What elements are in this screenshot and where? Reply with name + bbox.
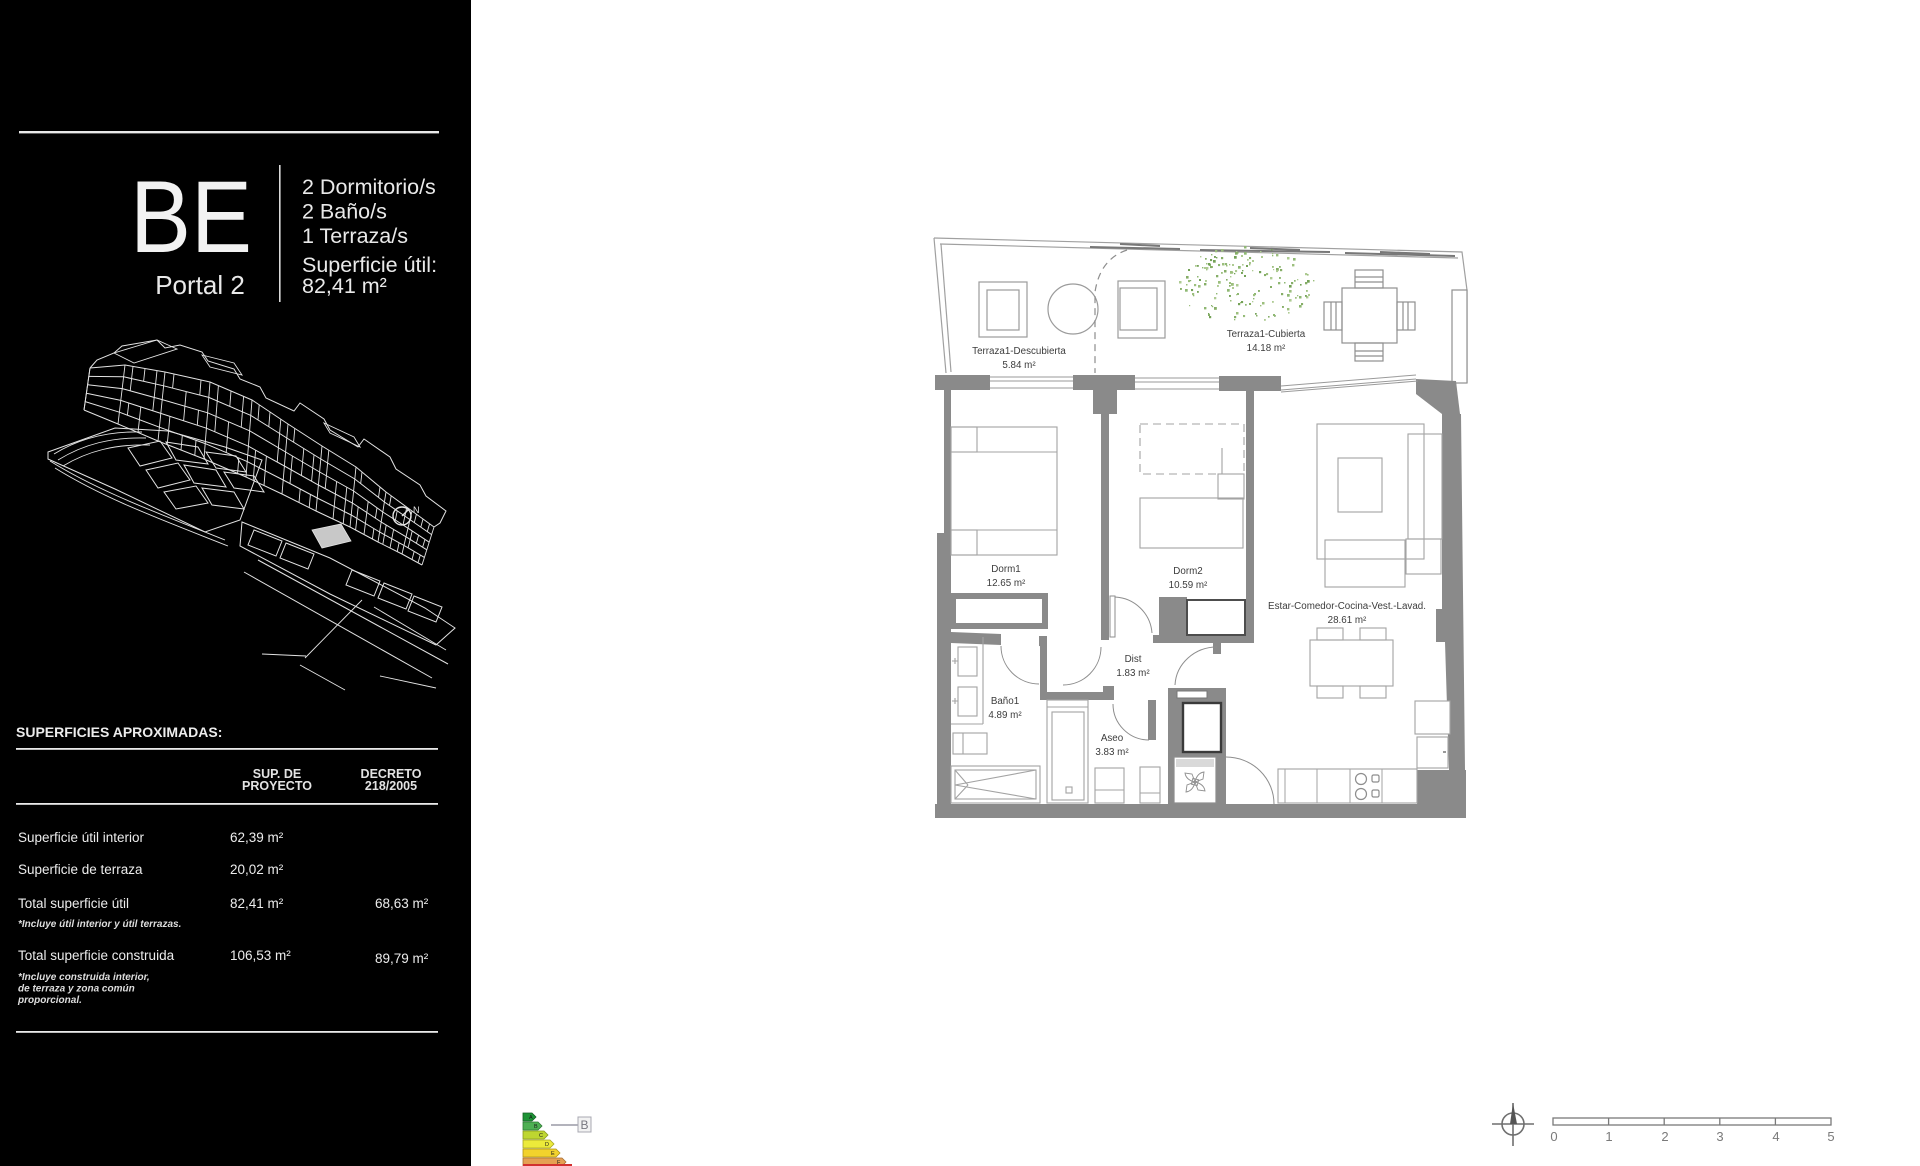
svg-text:3: 3 [1716, 1129, 1723, 1144]
svg-text:Total superficie construida: Total superficie construida [18, 948, 175, 963]
svg-text:62,39 m²: 62,39 m² [230, 830, 284, 845]
svg-text:82,41 m²: 82,41 m² [302, 274, 387, 298]
svg-text:Superficie de terraza: Superficie de terraza [18, 862, 143, 877]
svg-text:Baño1: Baño1 [991, 696, 1019, 707]
svg-text:Aseo: Aseo [1101, 733, 1124, 744]
svg-text:10.59 m²: 10.59 m² [1169, 580, 1208, 591]
svg-text:4: 4 [1772, 1129, 1779, 1144]
svg-text:Dorm2: Dorm2 [1173, 566, 1202, 577]
svg-text:12.65 m²: 12.65 m² [987, 578, 1026, 589]
svg-text:20,02 m²: 20,02 m² [230, 862, 284, 877]
svg-text:PROYECTO: PROYECTO [242, 779, 312, 793]
svg-text:89,79 m²: 89,79 m² [375, 951, 429, 966]
svg-text:B: B [580, 1118, 588, 1132]
svg-text:Portal 2: Portal 2 [155, 270, 245, 300]
svg-text:SUPERFICIES APROXIMADAS:: SUPERFICIES APROXIMADAS: [16, 724, 222, 740]
svg-text:2: 2 [1661, 1129, 1668, 1144]
svg-text:N: N [413, 505, 420, 515]
svg-text:2 Baño/s: 2 Baño/s [302, 200, 387, 224]
svg-text:D: D [545, 1142, 549, 1148]
svg-text:Dist: Dist [1125, 654, 1142, 665]
svg-text:1: 1 [1605, 1129, 1612, 1144]
svg-text:de terraza y zona común: de terraza y zona común [18, 984, 135, 995]
svg-text:Terraza1-Descubierta: Terraza1-Descubierta [972, 346, 1066, 357]
svg-text:BE: BE [130, 160, 252, 274]
svg-text:Superficie útil interior: Superficie útil interior [18, 830, 145, 845]
svg-text:1.83 m²: 1.83 m² [1116, 668, 1150, 679]
svg-text:B: B [534, 1124, 538, 1130]
svg-text:*Incluye construida interior,: *Incluye construida interior, [18, 972, 150, 983]
svg-text:proporcional.: proporcional. [17, 995, 82, 1006]
svg-text:82,41 m²: 82,41 m² [230, 896, 284, 911]
svg-text:A: A [529, 1115, 533, 1121]
svg-text:C: C [539, 1133, 543, 1139]
svg-text:Dorm1: Dorm1 [991, 564, 1020, 575]
svg-text:1 Terraza/s: 1 Terraza/s [302, 224, 408, 248]
svg-text:68,63 m²: 68,63 m² [375, 896, 429, 911]
svg-text:106,53 m²: 106,53 m² [230, 948, 291, 963]
svg-text:3.83 m²: 3.83 m² [1095, 747, 1129, 758]
svg-text:5.84 m²: 5.84 m² [1002, 360, 1036, 371]
svg-text:218/2005: 218/2005 [365, 779, 417, 793]
svg-text:Estar-Comedor-Cocina-Vest.-Lav: Estar-Comedor-Cocina-Vest.-Lavad. [1268, 601, 1426, 612]
svg-text:5: 5 [1827, 1129, 1834, 1144]
svg-text:*Incluye útil interior y útil: *Incluye útil interior y útil terrazas. [18, 919, 181, 930]
svg-text:0: 0 [1550, 1129, 1557, 1144]
svg-text:Terraza1-Cubierta: Terraza1-Cubierta [1227, 329, 1306, 340]
svg-text:14.18 m²: 14.18 m² [1247, 343, 1286, 354]
svg-text:Total superficie útil: Total superficie útil [18, 896, 129, 911]
svg-text:4.89 m²: 4.89 m² [988, 710, 1022, 721]
svg-text:2 Dormitorio/s: 2 Dormitorio/s [302, 175, 436, 199]
svg-text:E: E [551, 1151, 555, 1157]
svg-text:28.61 m²: 28.61 m² [1328, 615, 1367, 626]
